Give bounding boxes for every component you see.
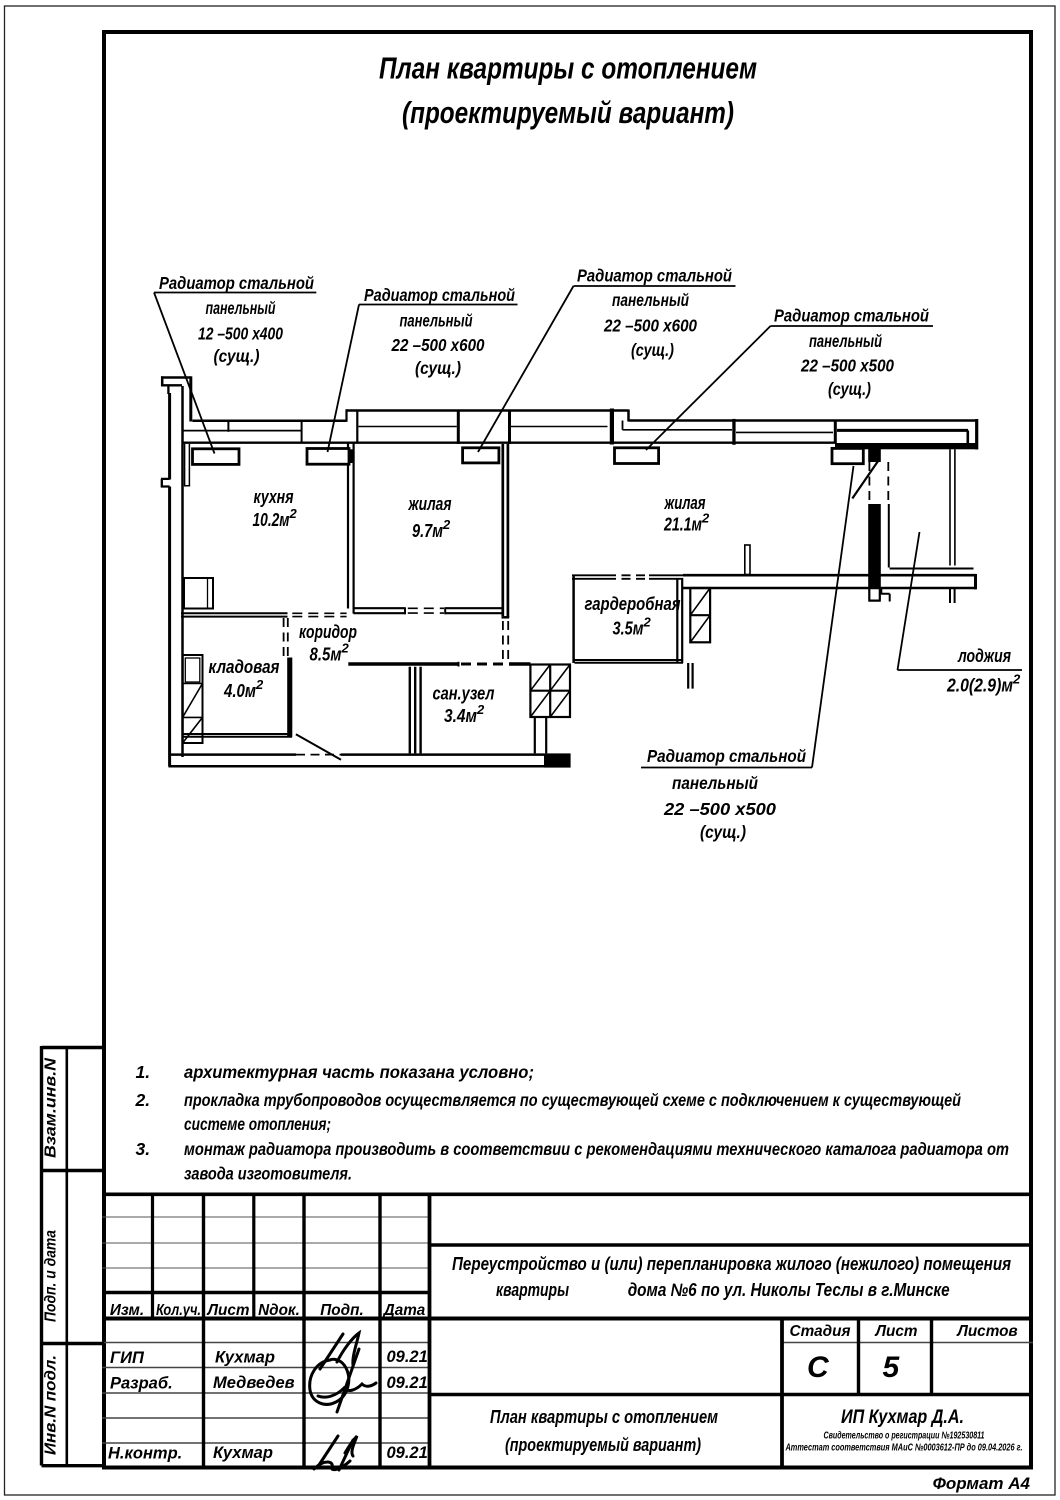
svg-text:квартиры: квартиры (496, 1280, 569, 1300)
svg-text:ГИП: ГИП (110, 1349, 145, 1367)
svg-text:дома №6 по ул. Николы Теслы в: дома №6 по ул. Николы Теслы в г.Минске (628, 1280, 950, 1300)
svg-text:панельный: панельный (612, 290, 689, 310)
svg-text:3.5м2: 3.5м2 (613, 615, 652, 639)
svg-text:Лист: Лист (875, 1323, 918, 1340)
svg-text:Радиатор стальной: Радиатор стальной (647, 746, 806, 766)
svg-text:Подп. и дата: Подп. и дата (43, 1230, 60, 1322)
svg-text:09.21: 09.21 (387, 1444, 428, 1462)
svg-text:Свидетельство о регистрации №1: Свидетельство о регистрации №192530811 (824, 1431, 985, 1442)
svg-text:22 –500 х600: 22 –500 х600 (391, 335, 485, 355)
svg-text:архитектурная часть показана у: архитектурная часть показана условно; (184, 1062, 534, 1082)
svg-text:(проектируемый вариант): (проектируемый вариант) (505, 1435, 701, 1455)
svg-text:Формат А4: Формат А4 (933, 1474, 1031, 1493)
svg-text:(сущ.): (сущ.) (415, 358, 461, 378)
svg-text:(сущ.): (сущ.) (700, 822, 746, 842)
svg-text:22 –500 х500: 22 –500 х500 (663, 799, 776, 819)
svg-text:9.7м2: 9.7м2 (412, 517, 451, 541)
svg-text:Изм.: Изм. (110, 1302, 144, 1319)
svg-text:21.1м2: 21.1м2 (663, 511, 710, 535)
svg-text:(сущ.): (сущ.) (828, 379, 871, 399)
svg-text:Переустройство и (или) перепла: Переустройство и (или) перепланировка жи… (452, 1254, 1011, 1274)
svg-text:Взам.инв.N: Взам.инв.N (43, 1057, 60, 1158)
svg-text:Радиатор стальной: Радиатор стальной (159, 273, 314, 293)
svg-text:4.0м2: 4.0м2 (223, 677, 264, 701)
svg-text:10.2м2: 10.2м2 (253, 506, 298, 530)
svg-text:План квартиры с отоплением: План квартиры с отоплением (379, 51, 757, 86)
svg-text:3.4м2: 3.4м2 (444, 702, 485, 726)
svg-text:панельный: панельный (672, 773, 758, 793)
svg-text:Подп.: Подп. (320, 1302, 363, 1319)
svg-text:Медведев: Медведев (213, 1374, 295, 1392)
svg-text:Радиатор стальной: Радиатор стальной (577, 266, 732, 286)
svg-text:3.: 3. (136, 1139, 151, 1159)
svg-text:системе отопления;: системе отопления; (184, 1114, 331, 1134)
svg-text:жилая: жилая (664, 492, 706, 513)
svg-text:монтаж радиатора производить в: монтаж радиатора производить в соответст… (184, 1139, 1009, 1159)
svg-text:кладовая: кладовая (209, 656, 280, 677)
svg-text:09.21: 09.21 (387, 1348, 428, 1366)
svg-text:(сущ.): (сущ.) (214, 346, 260, 366)
svg-text:2.: 2. (135, 1090, 151, 1110)
svg-text:прокладка трубопроводов осущес: прокладка трубопроводов осуществляется п… (184, 1090, 961, 1110)
svg-text:завода изготовителя.: завода изготовителя. (184, 1164, 352, 1184)
svg-text:5: 5 (882, 1351, 900, 1384)
svg-text:Кол.уч.: Кол.уч. (156, 1302, 201, 1319)
svg-text:лоджия: лоджия (957, 645, 1011, 666)
svg-text:Н.контр.: Н.контр. (108, 1445, 182, 1463)
svg-text:панельный: панельный (206, 298, 276, 318)
svg-text:Радиатор стальной: Радиатор стальной (364, 285, 515, 305)
svg-text:Дата: Дата (382, 1302, 426, 1319)
svg-text:панельный: панельный (400, 311, 473, 331)
svg-text:панельный: панельный (809, 331, 882, 351)
svg-text:(проектируемый вариант): (проектируемый вариант) (402, 95, 734, 130)
svg-text:жилая: жилая (408, 493, 452, 514)
svg-text:План квартиры с отоплением: План квартиры с отоплением (490, 1407, 718, 1427)
svg-text:Инв.N подл.: Инв.N подл. (43, 1355, 60, 1455)
svg-text:коридор: коридор (299, 621, 357, 642)
svg-text:Кухмар: Кухмар (215, 1349, 275, 1367)
svg-text:гардеробная: гардеробная (585, 593, 681, 614)
svg-text:Лист: Лист (207, 1302, 250, 1319)
svg-text:8.5м2: 8.5м2 (310, 641, 350, 665)
svg-text:Разраб.: Разраб. (110, 1375, 173, 1393)
svg-text:09.21: 09.21 (387, 1374, 428, 1392)
svg-text:22 –500 х500: 22 –500 х500 (800, 356, 894, 376)
svg-text:2.0(2.9)м2: 2.0(2.9)м2 (946, 672, 1021, 696)
svg-text:Листов: Листов (956, 1323, 1017, 1340)
svg-text:Кухмар: Кухмар (213, 1444, 273, 1462)
svg-text:1.: 1. (136, 1062, 151, 1082)
svg-text:Радиатор стальной: Радиатор стальной (774, 306, 929, 326)
svg-text:С: С (807, 1351, 830, 1384)
svg-text:сан.узел: сан.узел (433, 683, 495, 704)
svg-text:12 –500 х400: 12 –500 х400 (198, 324, 283, 344)
svg-text:Аттестат соответствия МАиС №00: Аттестат соответствия МАиС №0003612-ПР д… (785, 1442, 1023, 1453)
svg-text:кухня: кухня (254, 486, 294, 507)
svg-text:(сущ.): (сущ.) (631, 340, 674, 360)
svg-text:22 –500 х600: 22 –500 х600 (603, 316, 697, 336)
svg-text:Nдок.: Nдок. (258, 1302, 300, 1319)
svg-text:ИП Кухмар Д.А.: ИП Кухмар Д.А. (841, 1407, 964, 1428)
svg-text:Стадия: Стадия (790, 1323, 851, 1340)
